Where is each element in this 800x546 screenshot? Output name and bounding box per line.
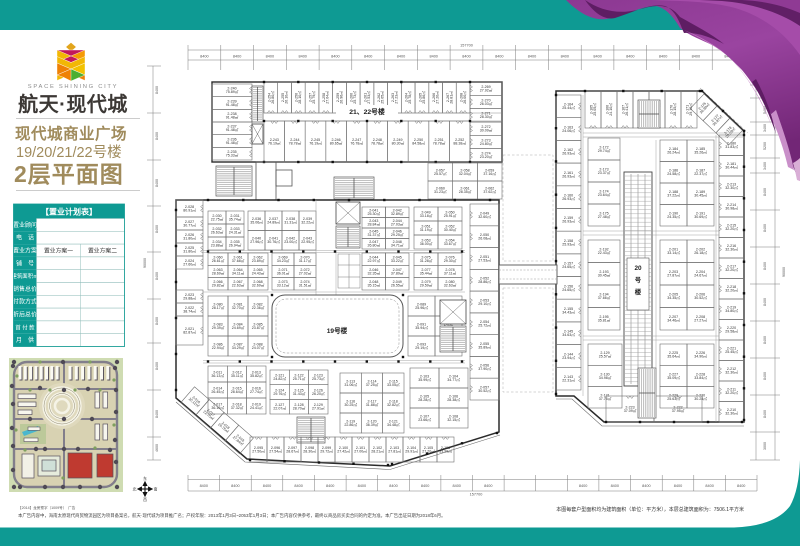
svg-text:2-05937.16㎡: 2-05937.16㎡ xyxy=(483,168,496,176)
svg-text:4600: 4600 xyxy=(155,444,159,452)
svg-text:东: 东 xyxy=(143,476,147,481)
svg-text:2-05725.57㎡: 2-05725.57㎡ xyxy=(434,168,447,176)
svg-text:8400: 8400 xyxy=(763,262,767,270)
svg-text:8400: 8400 xyxy=(642,484,650,488)
svg-text:20号楼: 20号楼 xyxy=(634,265,642,296)
svg-text:付款方式: 付款方式 xyxy=(13,298,37,306)
svg-text:8400: 8400 xyxy=(155,317,159,325)
svg-text:北: 北 xyxy=(133,487,137,492)
svg-text:置业方案二: 置业方案二 xyxy=(88,247,117,255)
svg-text:8400: 8400 xyxy=(626,55,634,59)
svg-text:8400: 8400 xyxy=(331,55,339,59)
svg-text:8400: 8400 xyxy=(579,484,587,488)
svg-text:建筑面积㎡: 建筑面积㎡ xyxy=(12,272,40,280)
svg-text:157700: 157700 xyxy=(470,493,483,497)
svg-text:8400: 8400 xyxy=(593,55,601,59)
svg-text:电 话: 电 话 xyxy=(16,234,34,242)
svg-text:8400: 8400 xyxy=(358,484,366,488)
svg-text:8400: 8400 xyxy=(364,55,372,59)
svg-text:8400: 8400 xyxy=(561,55,569,59)
svg-text:8400: 8400 xyxy=(231,484,239,488)
svg-text:2层平面图: 2层平面图 xyxy=(14,161,124,187)
svg-text:8400: 8400 xyxy=(611,484,619,488)
svg-text:首 付 款: 首 付 款 xyxy=(15,323,35,331)
svg-text:8400: 8400 xyxy=(692,55,700,59)
svg-text:SPACE SHINING CITY: SPACE SHINING CITY xyxy=(28,84,118,90)
svg-text:8400: 8400 xyxy=(763,336,767,344)
svg-text:8400: 8400 xyxy=(155,225,159,233)
svg-text:8400: 8400 xyxy=(155,132,159,140)
svg-text:8400: 8400 xyxy=(233,55,241,59)
svg-text:月 供: 月 供 xyxy=(16,336,34,344)
svg-text:8400: 8400 xyxy=(429,55,437,59)
svg-text:销售总价: 销售总价 xyxy=(13,285,37,293)
svg-text:8400: 8400 xyxy=(462,55,470,59)
svg-text:8400: 8400 xyxy=(452,484,460,488)
svg-text:8400: 8400 xyxy=(495,55,503,59)
svg-text:【置业计划表】: 【置业计划表】 xyxy=(41,207,97,217)
svg-text:2-05832.04㎡: 2-05832.04㎡ xyxy=(459,168,472,176)
svg-text:8400: 8400 xyxy=(705,484,713,488)
svg-text:8400: 8400 xyxy=(674,484,682,488)
svg-text:90000: 90000 xyxy=(782,267,786,277)
svg-text:8400: 8400 xyxy=(737,484,745,488)
svg-text:8400: 8400 xyxy=(155,410,159,418)
svg-text:8400: 8400 xyxy=(763,224,767,232)
svg-text:本广告内容中，海南太原现代商贸物流园区为项目备案名，航天·现: 本广告内容中，海南太原现代商贸物流园区为项目备案名，航天·现代城为项目推广名；产… xyxy=(18,512,446,519)
svg-text:8400: 8400 xyxy=(484,484,492,488)
svg-text:铺 号: 铺 号 xyxy=(16,259,34,267)
svg-text:157700: 157700 xyxy=(460,44,473,48)
svg-text:西: 西 xyxy=(143,497,147,502)
svg-text:21、22号楼: 21、22号楼 xyxy=(349,107,385,116)
svg-text:8400: 8400 xyxy=(200,55,208,59)
svg-text:8400: 8400 xyxy=(763,188,767,196)
svg-text:置业方案一: 置业方案一 xyxy=(44,247,73,255)
svg-text:8400: 8400 xyxy=(763,410,767,418)
svg-text:8400: 8400 xyxy=(528,55,536,59)
svg-text:折后总价: 折后总价 xyxy=(13,311,37,319)
svg-text:置业方案: 置业方案 xyxy=(13,247,37,255)
svg-text:8400: 8400 xyxy=(298,55,306,59)
svg-text:3400: 3400 xyxy=(763,162,767,170)
svg-text:5200: 5200 xyxy=(763,142,767,150)
svg-text:现代城商业广场: 现代城商业广场 xyxy=(15,124,127,143)
svg-text:8400: 8400 xyxy=(155,272,159,280)
svg-text:2-06128.35㎡: 2-06128.35㎡ xyxy=(459,186,472,194)
svg-text:3400: 3400 xyxy=(763,124,767,132)
svg-text:90000: 90000 xyxy=(143,258,147,268)
svg-text:8400: 8400 xyxy=(155,179,159,187)
svg-text:8400: 8400 xyxy=(263,484,271,488)
svg-text:8400: 8400 xyxy=(389,484,397,488)
svg-text:2-06237.62㎡: 2-06237.62㎡ xyxy=(483,186,496,194)
svg-text:8400: 8400 xyxy=(200,484,208,488)
svg-text:8400: 8400 xyxy=(266,55,274,59)
svg-text:8400: 8400 xyxy=(659,55,667,59)
svg-text:8400: 8400 xyxy=(421,484,429,488)
svg-text:8400: 8400 xyxy=(326,484,334,488)
svg-text:8400: 8400 xyxy=(397,55,405,59)
svg-text:8400: 8400 xyxy=(294,484,302,488)
svg-text:19号楼: 19号楼 xyxy=(327,326,348,335)
svg-text:本图每套户型面积均为建筑面积（单位：平方米），本层总建筑面积: 本图每套户型面积均为建筑面积（单位：平方米），本层总建筑面积为：7506.1平方… xyxy=(556,506,744,513)
svg-text:8400: 8400 xyxy=(155,362,159,370)
svg-text:航天·现代城: 航天·现代城 xyxy=(18,92,128,116)
svg-text:南: 南 xyxy=(154,487,158,492)
svg-text:2-06031.23㎡: 2-06031.23㎡ xyxy=(434,186,447,194)
svg-text:【2014】龙房预字（1009号） 广告: 【2014】龙房预字（1009号） 广告 xyxy=(18,505,76,510)
svg-text:8400: 8400 xyxy=(763,298,767,306)
svg-text:19/20/21/22号楼: 19/20/21/22号楼 xyxy=(16,144,122,161)
svg-text:3000: 3000 xyxy=(763,442,767,450)
svg-text:置业顾问: 置业顾问 xyxy=(13,221,37,229)
svg-text:8400: 8400 xyxy=(763,372,767,380)
svg-text:8400: 8400 xyxy=(155,86,159,94)
